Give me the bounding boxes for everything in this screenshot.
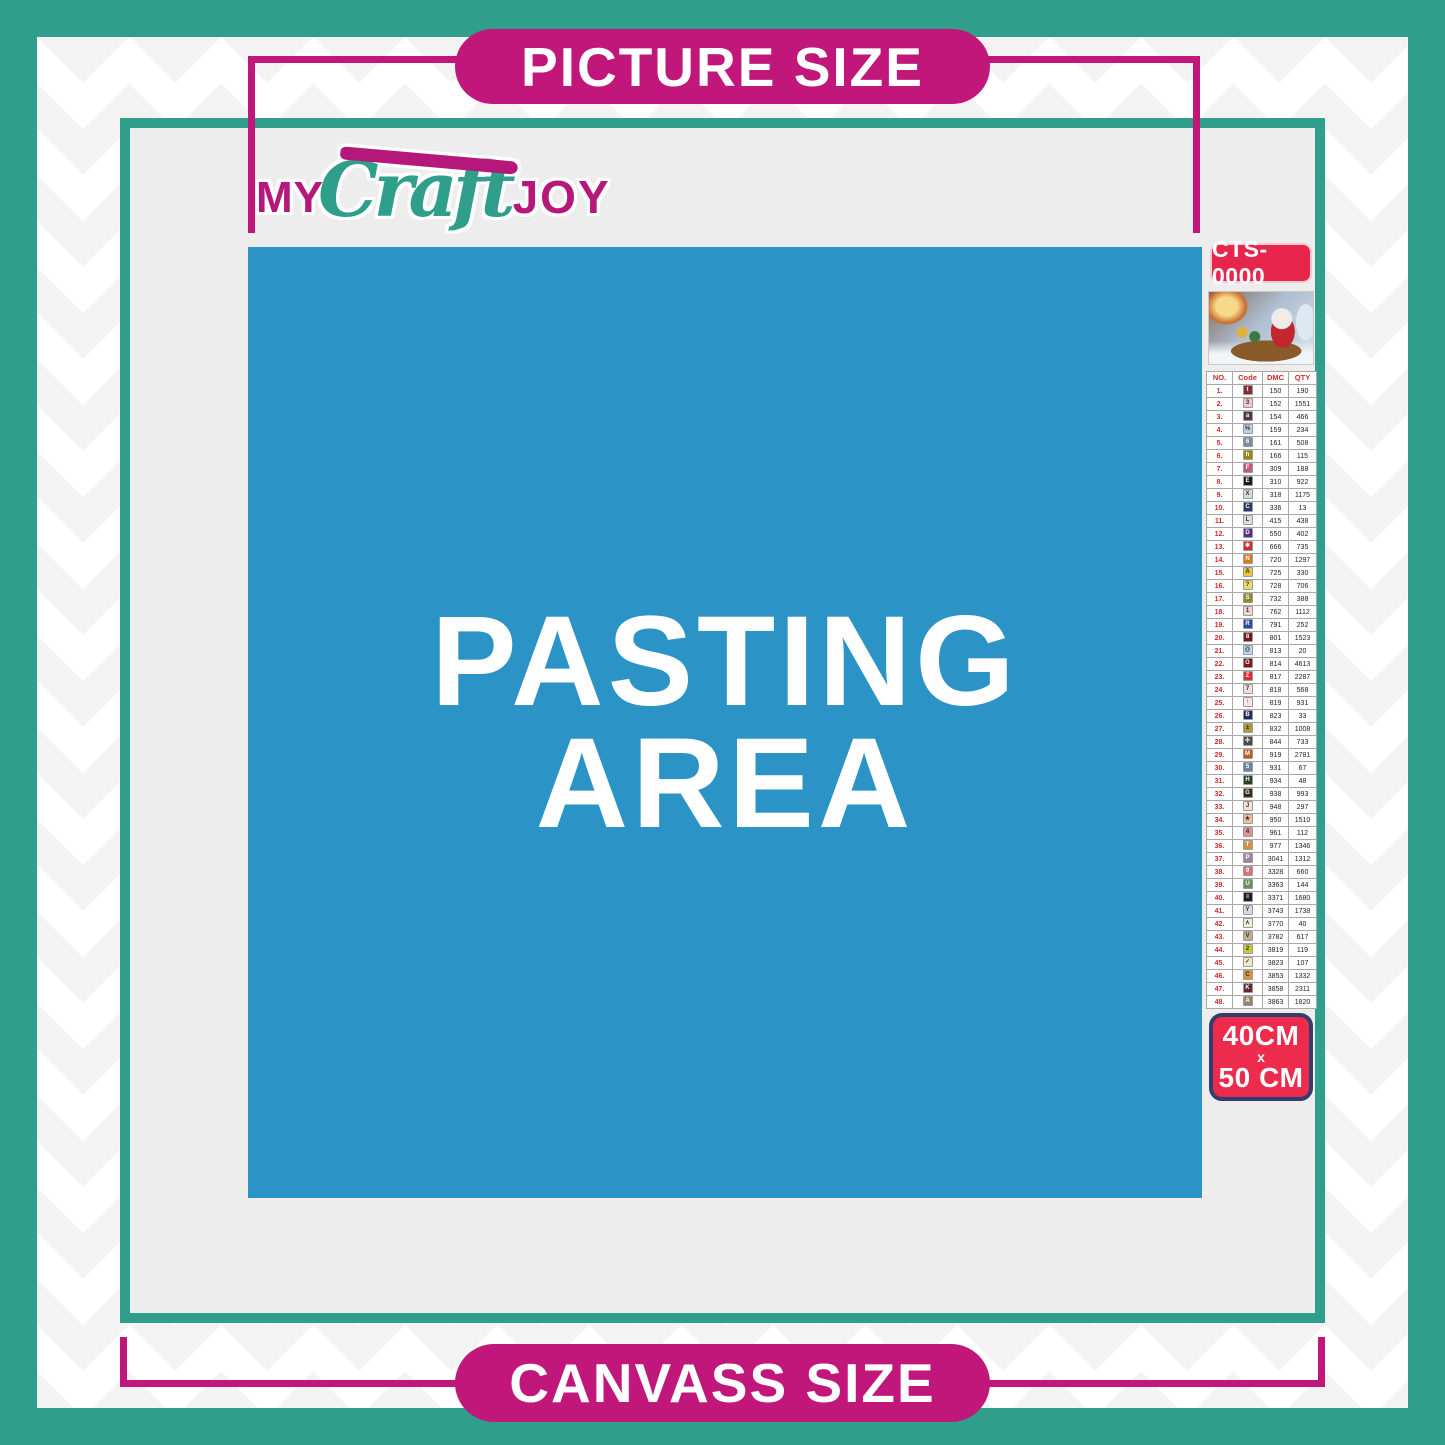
row-dmc: 150 <box>1263 385 1289 398</box>
row-qty: 1175 <box>1289 489 1317 502</box>
color-chip: M <box>1243 749 1253 759</box>
color-row: 36.T9771346 <box>1207 840 1317 853</box>
row-qty: 330 <box>1289 567 1317 580</box>
row-qty: 993 <box>1289 788 1317 801</box>
row-no: 47. <box>1207 983 1233 996</box>
row-no: 21. <box>1207 645 1233 658</box>
row-dmc: 336 <box>1263 502 1289 515</box>
row-qty: 13 <box>1289 502 1317 515</box>
color-chip: ✓ <box>1243 957 1253 967</box>
header-dmc: DMC <box>1263 372 1289 385</box>
row-qty: 1332 <box>1289 970 1317 983</box>
color-chip: B <box>1243 710 1253 720</box>
row-qty: 388 <box>1289 593 1317 606</box>
row-dmc: 550 <box>1263 528 1289 541</box>
row-dmc: 762 <box>1263 606 1289 619</box>
row-dmc: 720 <box>1263 554 1289 567</box>
color-row: 23.Z8172287 <box>1207 671 1317 684</box>
row-code: M <box>1233 749 1263 762</box>
row-code: 8 <box>1233 632 1263 645</box>
row-qty: 4613 <box>1289 658 1317 671</box>
row-code: ✱ <box>1233 541 1263 554</box>
row-no: 5. <box>1207 437 1233 450</box>
color-chip: a <box>1243 411 1253 421</box>
color-chip: 4 <box>1243 827 1253 837</box>
color-chip: ± <box>1243 723 1253 733</box>
row-code: J <box>1233 801 1263 814</box>
row-dmc: 159 <box>1263 424 1289 437</box>
color-chip: L <box>1243 515 1253 525</box>
color-chip: P <box>1243 853 1253 863</box>
row-code: F <box>1233 463 1263 476</box>
mycraftjoy-logo: MY Craft JOY <box>256 138 524 230</box>
color-row: 38.93328660 <box>1207 866 1317 879</box>
row-no: 38. <box>1207 866 1233 879</box>
row-qty: 617 <box>1289 931 1317 944</box>
row-no: 11. <box>1207 515 1233 528</box>
size-height-label: 50 CM <box>1219 1064 1304 1092</box>
row-dmc: 3770 <box>1263 918 1289 931</box>
row-code: D <box>1233 528 1263 541</box>
row-qty: 931 <box>1289 697 1317 710</box>
row-code: ≡ <box>1233 892 1263 905</box>
row-no: 33. <box>1207 801 1233 814</box>
row-dmc: 152 <box>1263 398 1289 411</box>
row-no: 30. <box>1207 762 1233 775</box>
color-row: 10.C33613 <box>1207 502 1317 515</box>
color-row: 47.K38582311 <box>1207 983 1317 996</box>
color-row: 28.✣844733 <box>1207 736 1317 749</box>
color-row: 13.✱666735 <box>1207 541 1317 554</box>
row-no: 35. <box>1207 827 1233 840</box>
color-chip: D <box>1243 528 1253 538</box>
row-qty: 1008 <box>1289 723 1317 736</box>
color-row: 45.✓3823107 <box>1207 957 1317 970</box>
row-code: E <box>1233 476 1263 489</box>
color-chip: 5 <box>1243 762 1253 772</box>
row-code: 2 <box>1233 944 1263 957</box>
row-qty: 67 <box>1289 762 1317 775</box>
row-no: 12. <box>1207 528 1233 541</box>
kit-preview-image <box>1208 291 1314 365</box>
color-row: 16.?728706 <box>1207 580 1317 593</box>
row-qty: 2781 <box>1289 749 1317 762</box>
row-dmc: 791 <box>1263 619 1289 632</box>
row-code: 9 <box>1233 866 1263 879</box>
row-dmc: 3853 <box>1263 970 1289 983</box>
header-code: Code <box>1233 372 1263 385</box>
row-code: L <box>1233 515 1263 528</box>
row-no: 39. <box>1207 879 1233 892</box>
color-chip: Z <box>1243 671 1253 681</box>
row-dmc: 818 <box>1263 684 1289 697</box>
row-code: Z <box>1233 671 1263 684</box>
row-code: % <box>1233 424 1263 437</box>
color-chip: h <box>1243 450 1253 460</box>
row-no: 48. <box>1207 996 1233 1009</box>
color-chip: A <box>1243 996 1253 1006</box>
picture-size-banner: PICTURE SIZE <box>455 29 990 104</box>
table-header-row: NO. Code DMC QTY <box>1207 372 1317 385</box>
color-row: 44.23819119 <box>1207 944 1317 957</box>
row-code: ± <box>1233 723 1263 736</box>
row-no: 44. <box>1207 944 1233 957</box>
row-dmc: 3743 <box>1263 905 1289 918</box>
row-qty: 1551 <box>1289 398 1317 411</box>
color-chip: S <box>1243 593 1253 603</box>
row-no: 14. <box>1207 554 1233 567</box>
row-dmc: 948 <box>1263 801 1289 814</box>
row-no: 23. <box>1207 671 1233 684</box>
color-chip: % <box>1243 424 1253 434</box>
row-dmc: 819 <box>1263 697 1289 710</box>
row-code: ↑ <box>1233 697 1263 710</box>
color-row: 12.D550402 <box>1207 528 1317 541</box>
row-no: 46. <box>1207 970 1233 983</box>
row-dmc: 3041 <box>1263 853 1289 866</box>
row-dmc: 3363 <box>1263 879 1289 892</box>
header-no: NO. <box>1207 372 1233 385</box>
row-no: 41. <box>1207 905 1233 918</box>
row-dmc: 977 <box>1263 840 1289 853</box>
color-row: 25.↑819931 <box>1207 697 1317 710</box>
row-no: 16. <box>1207 580 1233 593</box>
color-row: 3.a154466 <box>1207 411 1317 424</box>
row-qty: 508 <box>1289 437 1317 450</box>
row-code: ✓ <box>1233 957 1263 970</box>
row-qty: 33 <box>1289 710 1317 723</box>
color-row: 29.M9192781 <box>1207 749 1317 762</box>
row-dmc: 3328 <box>1263 866 1289 879</box>
row-dmc: 814 <box>1263 658 1289 671</box>
row-code: H <box>1233 775 1263 788</box>
row-dmc: 950 <box>1263 814 1289 827</box>
color-row: 11.L415438 <box>1207 515 1317 528</box>
row-dmc: 934 <box>1263 775 1289 788</box>
row-dmc: 161 <box>1263 437 1289 450</box>
row-qty: 1738 <box>1289 905 1317 918</box>
color-row: 5.6161508 <box>1207 437 1317 450</box>
row-code: K <box>1233 983 1263 996</box>
row-qty: 2287 <box>1289 671 1317 684</box>
color-row: 19.R791252 <box>1207 619 1317 632</box>
row-qty: 1510 <box>1289 814 1317 827</box>
row-code: 7 <box>1233 684 1263 697</box>
row-dmc: 725 <box>1263 567 1289 580</box>
color-legend-table: NO. Code DMC QTY 1.t1501902.315215513.a1… <box>1206 371 1317 1009</box>
color-row: 37.P30411312 <box>1207 853 1317 866</box>
row-dmc: 666 <box>1263 541 1289 554</box>
row-code: t <box>1233 385 1263 398</box>
row-qty: 20 <box>1289 645 1317 658</box>
color-row: 17.S732388 <box>1207 593 1317 606</box>
color-chip: X <box>1243 489 1253 499</box>
row-no: 34. <box>1207 814 1233 827</box>
color-chip: t <box>1243 385 1253 395</box>
row-code: B <box>1233 710 1263 723</box>
row-no: 3. <box>1207 411 1233 424</box>
row-dmc: 154 <box>1263 411 1289 424</box>
row-code: Å <box>1233 567 1263 580</box>
row-qty: 1820 <box>1289 996 1317 1009</box>
color-chip: 9 <box>1243 866 1253 876</box>
color-row: 22.O8144613 <box>1207 658 1317 671</box>
color-chip: C <box>1243 502 1253 512</box>
color-row: 8.E310922 <box>1207 476 1317 489</box>
picture-size-banner-label: PICTURE SIZE <box>521 35 924 99</box>
color-row: 46.C38531332 <box>1207 970 1317 983</box>
row-qty: 1312 <box>1289 853 1317 866</box>
pasting-area: PASTING AREA <box>248 247 1202 1198</box>
row-code: 5 <box>1233 762 1263 775</box>
color-row: 48.A38631820 <box>1207 996 1317 1009</box>
row-code: ★ <box>1233 814 1263 827</box>
row-dmc: 3863 <box>1263 996 1289 1009</box>
color-row: 32.G938993 <box>1207 788 1317 801</box>
row-dmc: 844 <box>1263 736 1289 749</box>
row-qty: 297 <box>1289 801 1317 814</box>
row-dmc: 309 <box>1263 463 1289 476</box>
color-row: 2.31521551 <box>1207 398 1317 411</box>
row-code: G <box>1233 788 1263 801</box>
color-row: 9.X3181175 <box>1207 489 1317 502</box>
row-dmc: 823 <box>1263 710 1289 723</box>
row-code: C <box>1233 970 1263 983</box>
row-dmc: 318 <box>1263 489 1289 502</box>
row-dmc: 728 <box>1263 580 1289 593</box>
color-row: 43.V3782617 <box>1207 931 1317 944</box>
color-chip: 8 <box>1243 632 1253 642</box>
color-chip: ≡ <box>1243 892 1253 902</box>
row-dmc: 801 <box>1263 632 1289 645</box>
logo-word-my: MY <box>256 176 324 230</box>
row-code: 1 <box>1233 606 1263 619</box>
row-qty: 188 <box>1289 463 1317 476</box>
row-qty: 190 <box>1289 385 1317 398</box>
row-dmc: 3858 <box>1263 983 1289 996</box>
row-qty: 1523 <box>1289 632 1317 645</box>
row-qty: 40 <box>1289 918 1317 931</box>
color-chip: ★ <box>1243 814 1253 824</box>
color-chip: @ <box>1243 645 1253 655</box>
color-chip: H <box>1243 775 1253 785</box>
color-chip: E <box>1243 476 1253 486</box>
row-qty: 568 <box>1289 684 1317 697</box>
kit-info-sidebar: CTS-0000 NO. Code DMC QTY 1.t1501902.315… <box>1206 243 1316 1101</box>
color-row: 41.Y37431738 <box>1207 905 1317 918</box>
row-code: C <box>1233 502 1263 515</box>
logo-word-joy: JOY <box>513 174 611 230</box>
color-chip: U <box>1243 879 1253 889</box>
row-qty: 1112 <box>1289 606 1317 619</box>
row-qty: 438 <box>1289 515 1317 528</box>
row-code: ✣ <box>1233 736 1263 749</box>
row-no: 24. <box>1207 684 1233 697</box>
color-chip: R <box>1243 619 1253 629</box>
color-chip: F <box>1243 463 1253 473</box>
row-no: 6. <box>1207 450 1233 463</box>
color-chip: Å <box>1243 567 1253 577</box>
row-qty: 252 <box>1289 619 1317 632</box>
color-chip: J <box>1243 801 1253 811</box>
color-row: 31.H93448 <box>1207 775 1317 788</box>
color-chip: V <box>1243 931 1253 941</box>
row-no: 4. <box>1207 424 1233 437</box>
color-row: 27.±8321008 <box>1207 723 1317 736</box>
row-qty: 1346 <box>1289 840 1317 853</box>
row-code: A <box>1233 996 1263 1009</box>
color-row: 40.≡33711680 <box>1207 892 1317 905</box>
color-chip: C <box>1243 970 1253 980</box>
row-qty: 922 <box>1289 476 1317 489</box>
product-code-badge: CTS-0000 <box>1210 243 1312 283</box>
row-no: 43. <box>1207 931 1233 944</box>
row-code: h <box>1233 450 1263 463</box>
row-dmc: 938 <box>1263 788 1289 801</box>
row-code: 6 <box>1233 437 1263 450</box>
header-qty: QTY <box>1289 372 1317 385</box>
color-chip: G <box>1243 788 1253 798</box>
row-code: ? <box>1233 580 1263 593</box>
row-no: 1. <box>1207 385 1233 398</box>
size-width-label: 40CM <box>1223 1022 1300 1050</box>
row-dmc: 832 <box>1263 723 1289 736</box>
row-code: O <box>1233 658 1263 671</box>
color-row: 39.U3363144 <box>1207 879 1317 892</box>
row-code: R <box>1233 619 1263 632</box>
pasting-area-label-line1: PASTING <box>431 601 1018 723</box>
row-no: 31. <box>1207 775 1233 788</box>
row-dmc: 961 <box>1263 827 1289 840</box>
row-no: 2. <box>1207 398 1233 411</box>
color-chip: 2 <box>1243 944 1253 954</box>
color-chip: Y <box>1243 905 1253 915</box>
row-code: X <box>1233 489 1263 502</box>
row-dmc: 817 <box>1263 671 1289 684</box>
row-qty: 48 <box>1289 775 1317 788</box>
color-chip: ✱ <box>1243 541 1253 551</box>
color-chip: T <box>1243 840 1253 850</box>
row-dmc: 310 <box>1263 476 1289 489</box>
canvas-size-badge: 40CM x 50 CM <box>1209 1013 1313 1101</box>
color-row: 18.17621112 <box>1207 606 1317 619</box>
row-code: N <box>1233 554 1263 567</box>
row-qty: 660 <box>1289 866 1317 879</box>
row-qty: 107 <box>1289 957 1317 970</box>
color-row: 14.N7201297 <box>1207 554 1317 567</box>
row-no: 18. <box>1207 606 1233 619</box>
row-dmc: 931 <box>1263 762 1289 775</box>
color-chip: 1 <box>1243 606 1253 616</box>
color-row: 30.593167 <box>1207 762 1317 775</box>
row-no: 9. <box>1207 489 1233 502</box>
color-chip: ∧ <box>1243 918 1253 928</box>
color-row: 7.F309188 <box>1207 463 1317 476</box>
row-qty: 733 <box>1289 736 1317 749</box>
row-code: T <box>1233 840 1263 853</box>
row-no: 26. <box>1207 710 1233 723</box>
row-dmc: 3823 <box>1263 957 1289 970</box>
row-no: 10. <box>1207 502 1233 515</box>
row-dmc: 3371 <box>1263 892 1289 905</box>
row-code: a <box>1233 411 1263 424</box>
color-row: 34.★9501510 <box>1207 814 1317 827</box>
row-qty: 2311 <box>1289 983 1317 996</box>
row-no: 17. <box>1207 593 1233 606</box>
color-row: 21.@81320 <box>1207 645 1317 658</box>
color-row: 42.∧377040 <box>1207 918 1317 931</box>
row-code: Y <box>1233 905 1263 918</box>
row-qty: 115 <box>1289 450 1317 463</box>
color-row: 15.Å725330 <box>1207 567 1317 580</box>
row-code: P <box>1233 853 1263 866</box>
row-no: 20. <box>1207 632 1233 645</box>
color-chip: O <box>1243 658 1253 668</box>
poster: PASTING AREA PICTURE SIZE CANVASS SIZE M… <box>0 0 1445 1445</box>
row-qty: 119 <box>1289 944 1317 957</box>
row-no: 36. <box>1207 840 1233 853</box>
row-no: 22. <box>1207 658 1233 671</box>
color-chip: 6 <box>1243 437 1253 447</box>
row-code: S <box>1233 593 1263 606</box>
row-code: 4 <box>1233 827 1263 840</box>
color-row: 1.t150190 <box>1207 385 1317 398</box>
row-qty: 466 <box>1289 411 1317 424</box>
color-chip: 3 <box>1243 398 1253 408</box>
row-no: 32. <box>1207 788 1233 801</box>
color-row: 6.h166115 <box>1207 450 1317 463</box>
row-code: ∧ <box>1233 918 1263 931</box>
row-dmc: 3819 <box>1263 944 1289 957</box>
row-qty: 402 <box>1289 528 1317 541</box>
canvass-size-banner-label: CANVASS SIZE <box>509 1351 935 1415</box>
row-qty: 144 <box>1289 879 1317 892</box>
row-no: 15. <box>1207 567 1233 580</box>
row-no: 7. <box>1207 463 1233 476</box>
row-code: V <box>1233 931 1263 944</box>
row-code: 3 <box>1233 398 1263 411</box>
color-chip: K <box>1243 983 1253 993</box>
row-no: 25. <box>1207 697 1233 710</box>
row-no: 45. <box>1207 957 1233 970</box>
product-code-label: CTS-0000 <box>1212 236 1310 290</box>
row-no: 40. <box>1207 892 1233 905</box>
row-code: @ <box>1233 645 1263 658</box>
canvass-size-banner: CANVASS SIZE <box>455 1344 990 1422</box>
row-qty: 735 <box>1289 541 1317 554</box>
row-no: 13. <box>1207 541 1233 554</box>
color-chip: N <box>1243 554 1253 564</box>
color-row: 24.7818568 <box>1207 684 1317 697</box>
row-qty: 1297 <box>1289 554 1317 567</box>
row-no: 28. <box>1207 736 1233 749</box>
color-table-body: 1.t1501902.315215513.a1544664.%1592345.6… <box>1207 385 1317 1009</box>
color-row: 35.4961112 <box>1207 827 1317 840</box>
row-dmc: 813 <box>1263 645 1289 658</box>
row-no: 37. <box>1207 853 1233 866</box>
color-chip: ✣ <box>1243 736 1253 746</box>
row-dmc: 3782 <box>1263 931 1289 944</box>
color-row: 26.B82333 <box>1207 710 1317 723</box>
row-dmc: 919 <box>1263 749 1289 762</box>
row-dmc: 415 <box>1263 515 1289 528</box>
color-row: 4.%159234 <box>1207 424 1317 437</box>
row-code: U <box>1233 879 1263 892</box>
color-row: 20.88011523 <box>1207 632 1317 645</box>
row-qty: 234 <box>1289 424 1317 437</box>
color-chip: ? <box>1243 580 1253 590</box>
row-dmc: 732 <box>1263 593 1289 606</box>
